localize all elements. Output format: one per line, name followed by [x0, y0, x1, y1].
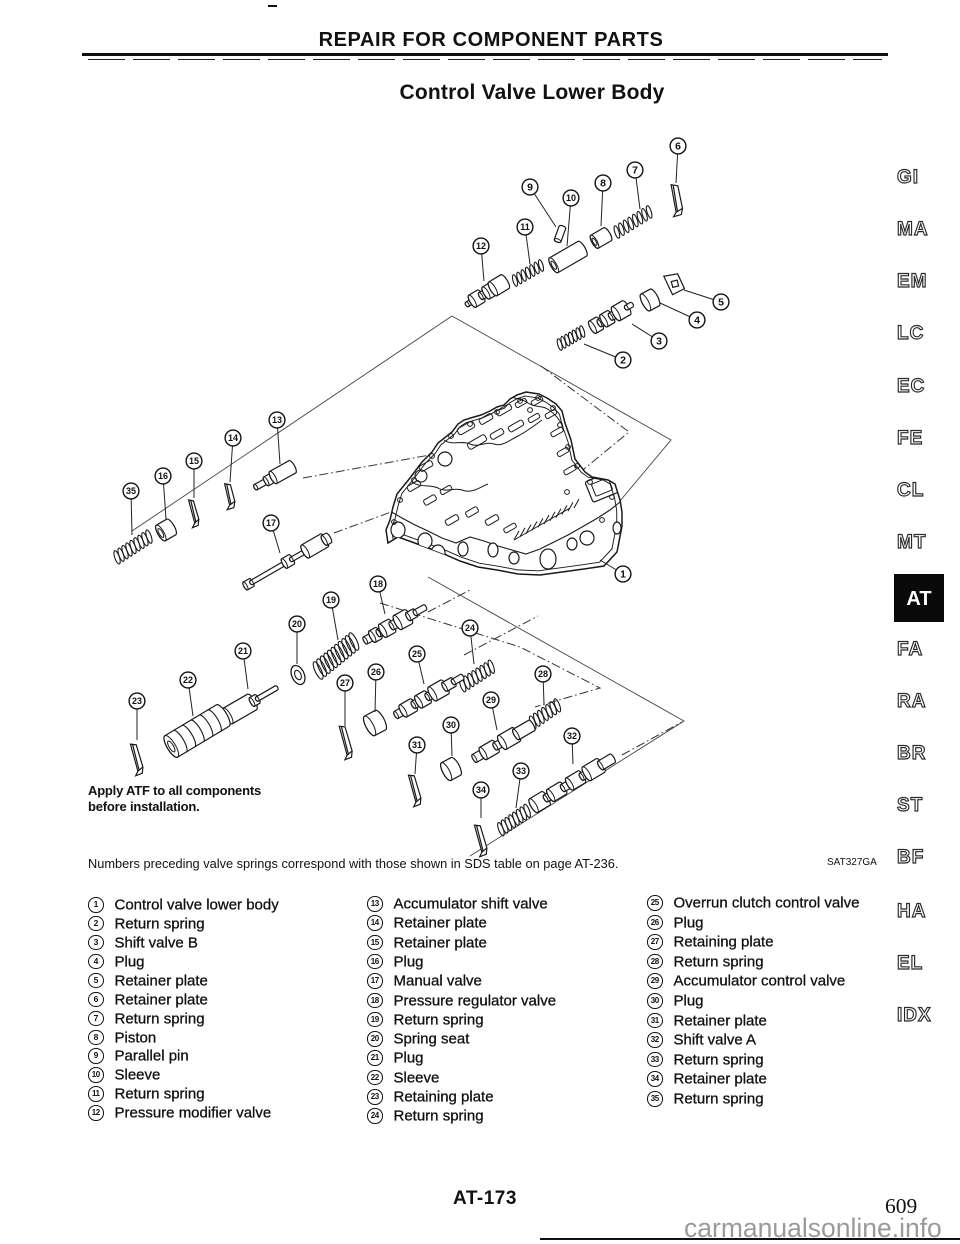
- svg-text:14: 14: [228, 433, 238, 443]
- svg-text:8: 8: [600, 177, 606, 189]
- svg-text:18: 18: [373, 579, 383, 589]
- svg-text:17: 17: [266, 518, 276, 528]
- svg-text:6: 6: [675, 140, 681, 152]
- svg-text:12: 12: [476, 241, 486, 251]
- svg-text:30: 30: [446, 720, 456, 730]
- svg-text:9: 9: [527, 181, 533, 193]
- svg-text:10: 10: [566, 193, 576, 203]
- svg-text:1: 1: [620, 568, 626, 580]
- svg-text:29: 29: [486, 695, 496, 705]
- svg-text:35: 35: [126, 486, 136, 496]
- svg-text:33: 33: [516, 766, 526, 776]
- svg-text:2: 2: [620, 354, 626, 366]
- svg-text:16: 16: [158, 471, 168, 481]
- svg-text:5: 5: [718, 296, 724, 308]
- svg-text:20: 20: [292, 619, 302, 629]
- svg-text:15: 15: [189, 456, 199, 466]
- svg-text:34: 34: [476, 785, 486, 795]
- svg-text:25: 25: [412, 649, 422, 659]
- svg-text:21: 21: [238, 646, 248, 656]
- svg-text:3: 3: [656, 335, 662, 347]
- svg-text:13: 13: [272, 415, 282, 425]
- svg-text:24: 24: [465, 623, 475, 633]
- svg-text:7: 7: [632, 164, 638, 176]
- svg-text:23: 23: [132, 696, 142, 706]
- svg-text:4: 4: [694, 314, 700, 326]
- svg-text:11: 11: [520, 222, 530, 232]
- svg-text:19: 19: [326, 595, 336, 605]
- svg-text:26: 26: [371, 667, 381, 677]
- svg-text:22: 22: [183, 675, 193, 685]
- svg-text:32: 32: [567, 731, 577, 741]
- svg-text:31: 31: [412, 740, 422, 750]
- svg-text:28: 28: [538, 669, 548, 679]
- svg-text:27: 27: [340, 678, 350, 688]
